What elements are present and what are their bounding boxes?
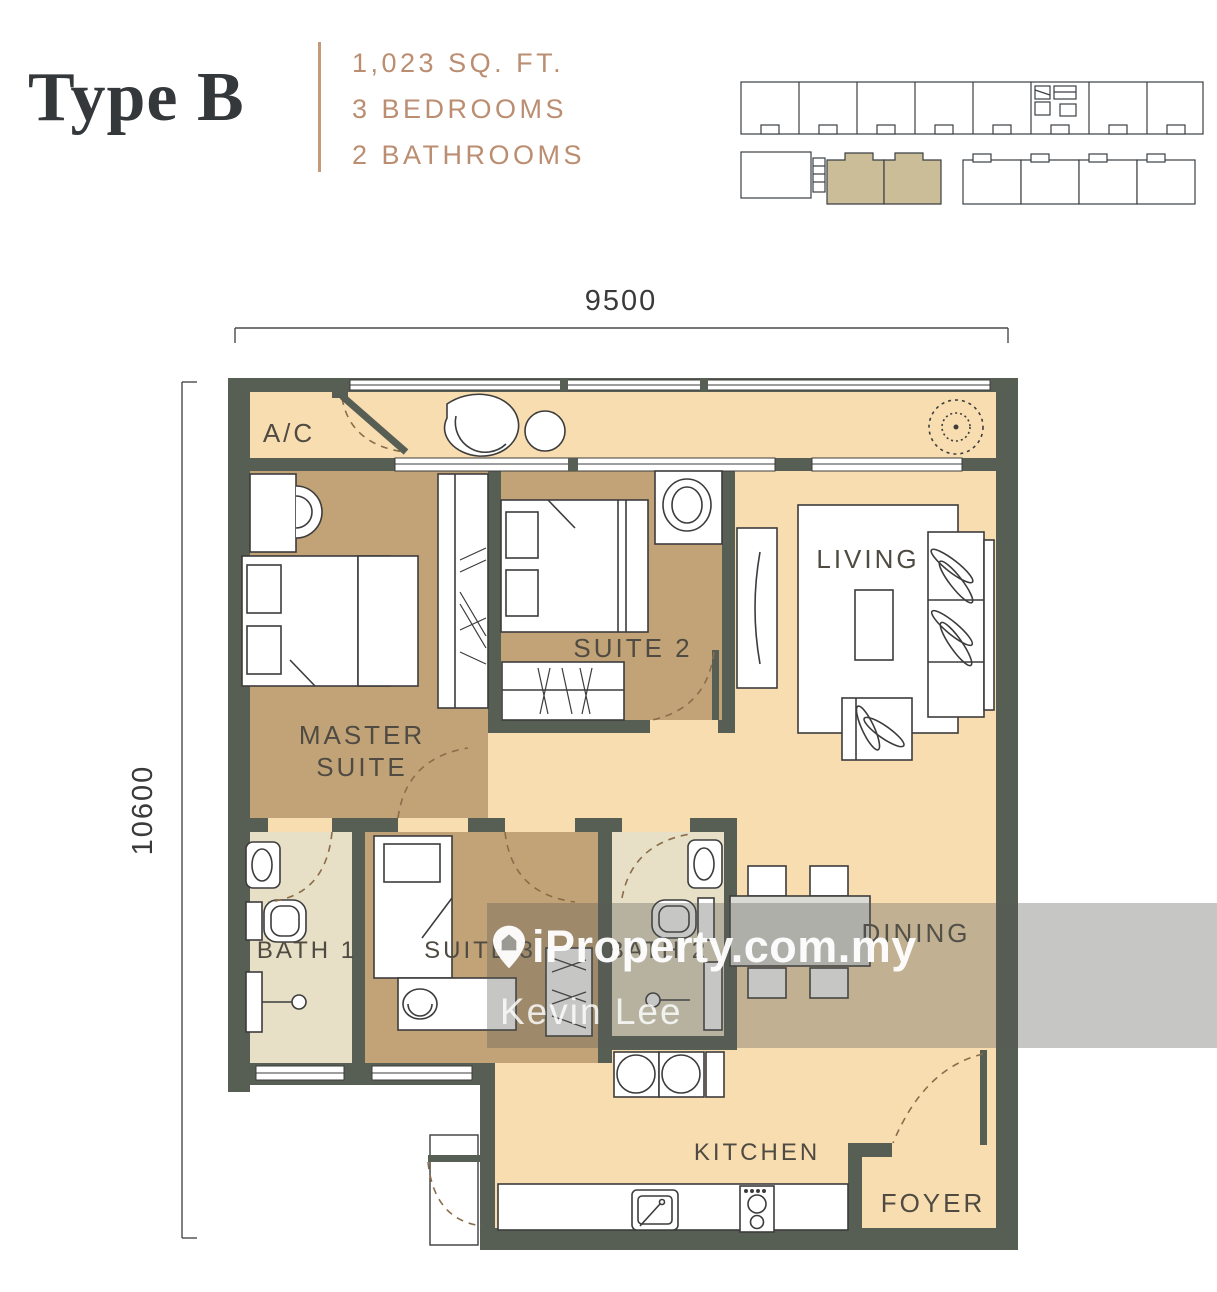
label-suite3: SUITE 3 [424,937,536,964]
bath2-sink-icon [688,840,722,888]
dimension-height-value: 10600 [127,765,159,856]
label-living: LIVING [816,544,919,574]
label-dining: DINING [862,918,971,948]
tv-console-icon [737,528,777,688]
suite3-wardrobe-icon [546,948,592,1036]
label-master-2: SUITE [316,752,408,782]
label-kitchen: KITCHEN [694,1139,820,1166]
suite3-desk-icon [398,978,516,1030]
master-wardrobe-icon [438,474,488,708]
suite2-bed-icon [501,500,648,632]
sofa-icon [928,532,994,717]
dimension-height [182,382,197,1238]
label-bath1: BATH 1 [257,937,357,964]
suite2-wardrobe-icon [502,662,624,720]
suite2-basin-icon [655,471,722,544]
label-foyer: FOYER [881,1188,986,1218]
label-bath2: BATH 2 [608,937,708,964]
dimension-width [235,328,1008,343]
floorplan-page: Type B 1,023 SQ. FT. 3 BEDROOMS 2 BATHRO… [0,0,1217,1292]
bath1-toilet-icon [246,900,306,942]
stove-icon [740,1186,774,1232]
bath2-toilet-icon [652,898,714,940]
label-suite2: SUITE 2 [573,633,692,663]
coffee-table-icon [855,590,893,660]
master-bed-icon [242,556,418,686]
label-ac: A/C [263,418,315,448]
dimension-width-value: 9500 [585,285,658,317]
floor-plan: A/C MASTER SUITE SUITE 2 LIVING BATH 1 S… [0,0,1217,1292]
yard-ledge [430,1135,478,1245]
washer-icon [614,1052,724,1097]
bath1-sink-icon [246,842,280,888]
label-master-1: MASTER [299,720,425,750]
armchair-icon [842,698,912,760]
kitchen-sink-icon [632,1190,678,1230]
